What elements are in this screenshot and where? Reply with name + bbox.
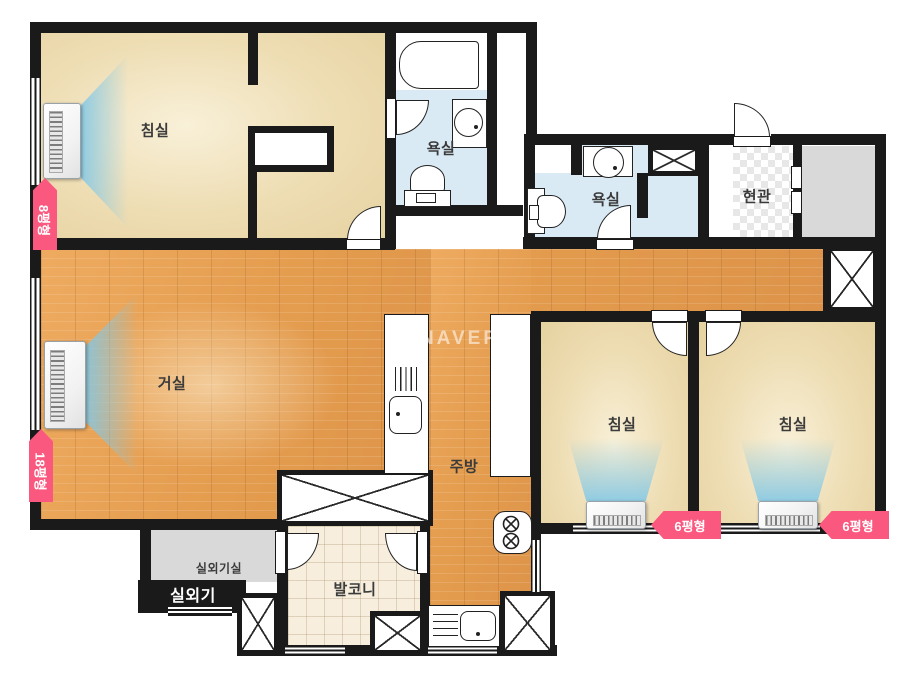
bath1-door: [386, 98, 396, 139]
gray-room-floor: [802, 146, 875, 237]
floor-plan: 8평형 18평형 6평형 6평형 침실 욕실 욕실 현관 거실 주방 침실 침실…: [0, 0, 923, 676]
bedroom3-label: 침실: [779, 414, 808, 435]
bedroom2-label: 침실: [608, 414, 637, 435]
badge-6pyeong-bedroom3: 6평형: [819, 511, 889, 539]
naver-watermark: NAVER: [420, 328, 500, 350]
wall-step-vertical: [526, 22, 537, 145]
wall-bath1-right: [487, 22, 497, 212]
window-balcony: [285, 646, 345, 655]
badge-18pyeong: 18평형: [29, 429, 53, 502]
wall-right-upper: [875, 134, 886, 248]
sink1-icon: [454, 108, 483, 137]
bedroom2-door: [651, 310, 688, 322]
aircon-bedroom3: [758, 501, 818, 529]
shaft-box-1: [648, 145, 700, 176]
outdoor-unit-label: 실외기: [170, 582, 216, 606]
window-bedroom-main: [30, 78, 41, 185]
badge-6pyeong-bedroom2-label: 6평형: [674, 516, 705, 535]
bath1-label: 욕실: [427, 138, 456, 159]
wall-entrance-top-right: [771, 134, 886, 145]
wall-bedroom1-partial-top: [248, 22, 258, 85]
bedroom-main-door: [346, 239, 381, 250]
balcony-right-door: [417, 531, 428, 574]
bottom-sink-icon: [460, 611, 496, 641]
bottom-counter-vent: [433, 614, 458, 640]
wall-step-horizontal: [526, 134, 709, 145]
wall-entrance-top-left: [709, 134, 734, 145]
badge-6pyeong-bedroom3-label: 6평형: [842, 516, 873, 535]
bedroom3-door: [705, 310, 742, 322]
kitchen-sink-icon: [389, 396, 422, 434]
living-label: 거실: [158, 373, 187, 394]
balcony-left-door: [275, 531, 286, 574]
toilet1-button: [416, 193, 436, 203]
wall-bedroom-divider: [688, 311, 699, 534]
ac-unit-room-label: 실외기실: [196, 560, 242, 577]
toilet2-bowl: [537, 195, 566, 228]
kitchen-label: 주방: [450, 456, 479, 477]
entrance-side-door-b: [791, 191, 802, 214]
sink2-icon: [593, 147, 624, 178]
bathtub-icon: [399, 41, 479, 89]
badge-18pyeong-label: 18평형: [32, 452, 51, 490]
balcony-label: 발코니: [334, 579, 377, 600]
shaft-box-2: [826, 246, 878, 312]
wall-top: [30, 22, 537, 33]
sink1-faucet: [474, 125, 478, 129]
dish-rack-icon: [395, 367, 418, 391]
entrance-door-arc: [734, 103, 770, 137]
entrance-label: 현관: [743, 186, 772, 207]
shaft-box-4: [237, 593, 279, 655]
wall-bedroom1-bottom: [30, 238, 395, 250]
bedroom-main-label: 침실: [141, 120, 170, 141]
toilet2-button: [529, 205, 539, 220]
window-kitchen-bottom: [428, 646, 497, 655]
badge-8pyeong-label: 8평형: [36, 204, 55, 235]
bottom-sink-faucet: [476, 632, 480, 636]
wall-right-bedrooms: [875, 311, 886, 534]
stove-icon: [493, 511, 532, 554]
entrance-door: [733, 136, 771, 147]
wall-bath2-nook: [571, 145, 582, 175]
bath2-door: [596, 239, 634, 250]
shaft-box-5: [370, 611, 425, 655]
wall-living-bottom: [30, 519, 288, 530]
closet-niche: [255, 133, 327, 165]
bath2-label: 욕실: [592, 189, 621, 210]
kitchen-sink-faucet: [396, 412, 400, 416]
entrance-side-door-a: [791, 166, 802, 189]
aircon-living: [44, 341, 86, 429]
shaft-box-3: [277, 470, 433, 526]
badge-6pyeong-bedroom2: 6평형: [651, 511, 721, 539]
sink2-faucet: [613, 166, 617, 170]
window-kitchen-side: [531, 540, 541, 592]
outdoor-unit-louver: [168, 605, 232, 616]
aircon-bedroom-main: [43, 103, 81, 179]
aircon-bedroom2: [586, 501, 646, 529]
badge-8pyeong: 8평형: [33, 178, 57, 250]
wall-acroom-left: [140, 519, 151, 585]
window-living: [30, 278, 41, 430]
shaft-box-6: [500, 591, 555, 655]
wall-bath2-inner: [637, 173, 648, 218]
